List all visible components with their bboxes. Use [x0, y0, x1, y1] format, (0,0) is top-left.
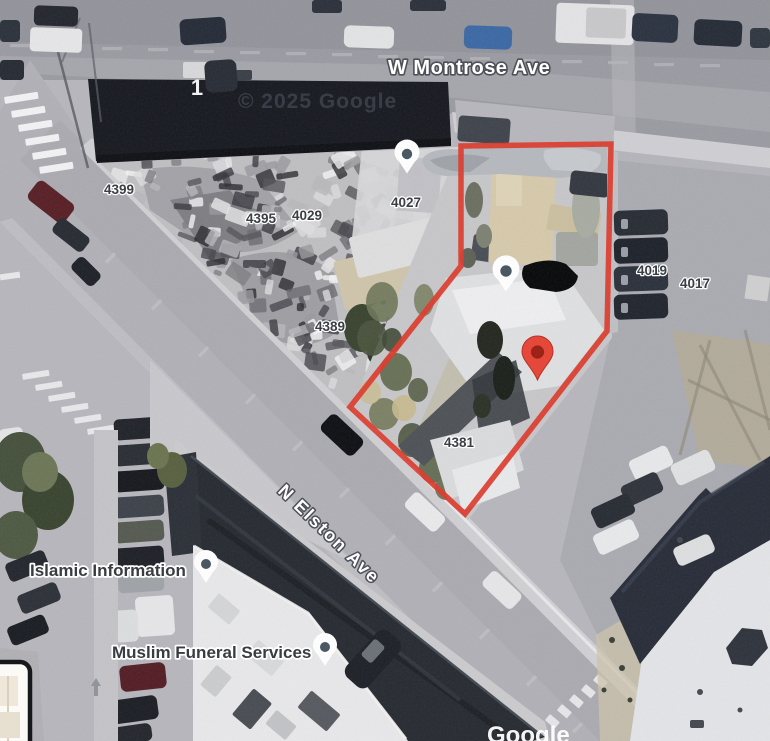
svg-text:4027: 4027 — [391, 195, 421, 210]
svg-text:Google: Google — [487, 722, 570, 741]
svg-text:4381: 4381 — [444, 435, 475, 450]
svg-text:4029: 4029 — [292, 208, 322, 223]
svg-text:4395: 4395 — [246, 211, 277, 226]
svg-text:Islamic Information: Islamic Information — [30, 561, 186, 580]
svg-text:W Montrose Ave: W Montrose Ave — [388, 57, 550, 79]
svg-text:4389: 4389 — [315, 319, 345, 334]
svg-text:4017: 4017 — [680, 276, 710, 291]
svg-text:1: 1 — [191, 75, 203, 100]
svg-text:Muslim Funeral Services: Muslim Funeral Services — [112, 643, 311, 662]
svg-text:4399: 4399 — [104, 182, 134, 197]
svg-text:4019: 4019 — [637, 263, 667, 278]
